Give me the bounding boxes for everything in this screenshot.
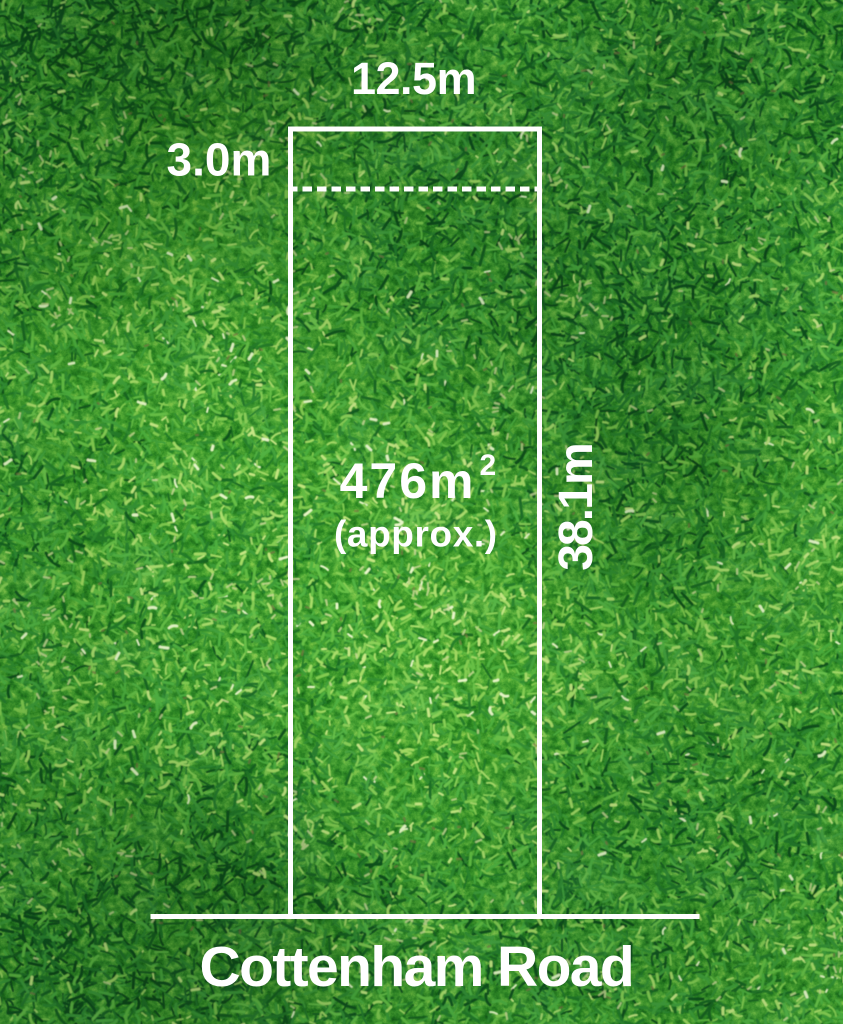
svg-text:12.5m: 12.5m — [351, 53, 476, 104]
svg-text:476m: 476m — [340, 453, 476, 509]
svg-text:(approx.): (approx.) — [334, 514, 498, 555]
svg-text:3.0m: 3.0m — [167, 134, 272, 186]
svg-text:2: 2 — [480, 449, 497, 482]
svg-text:38.1m: 38.1m — [550, 444, 603, 571]
svg-text:Cottenham Road: Cottenham Road — [200, 935, 634, 999]
